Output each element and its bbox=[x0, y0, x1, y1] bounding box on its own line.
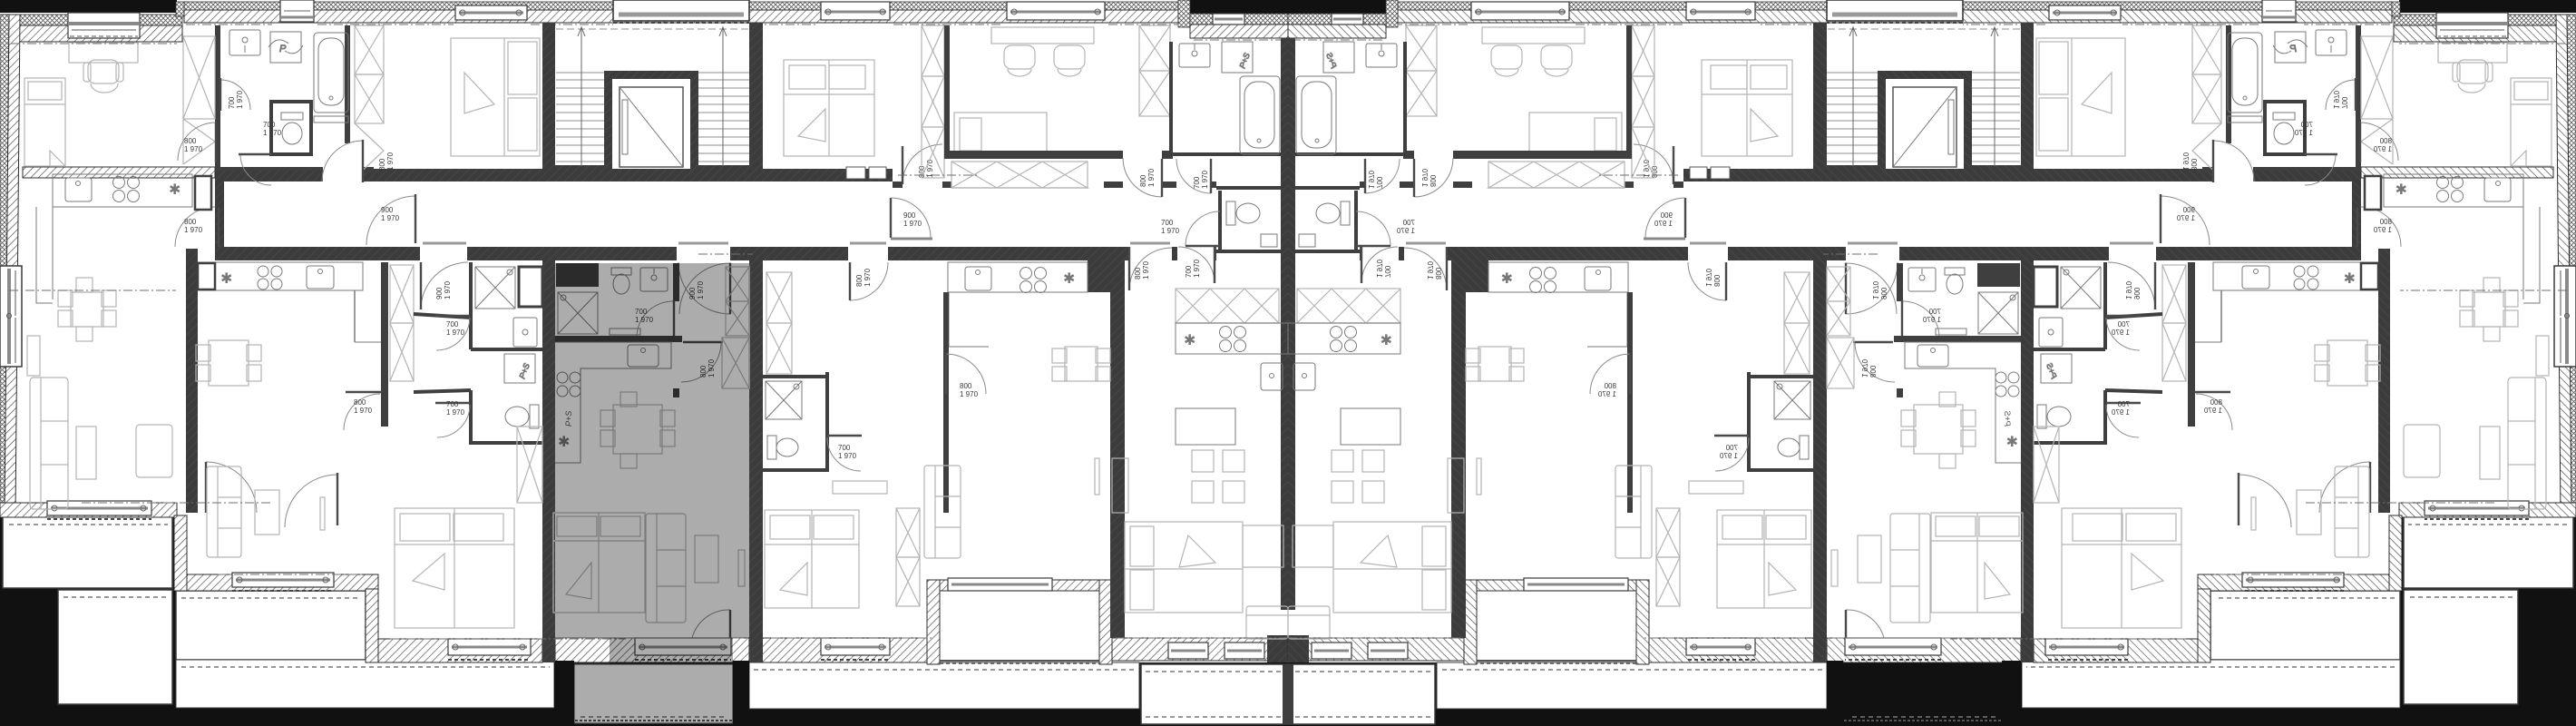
svg-text:✱: ✱ bbox=[1063, 271, 1075, 287]
svg-text:✱: ✱ bbox=[220, 271, 232, 287]
svg-text:P: P bbox=[279, 44, 287, 54]
svg-text:✱: ✱ bbox=[169, 182, 181, 198]
svg-text:✱: ✱ bbox=[1184, 333, 1195, 348]
